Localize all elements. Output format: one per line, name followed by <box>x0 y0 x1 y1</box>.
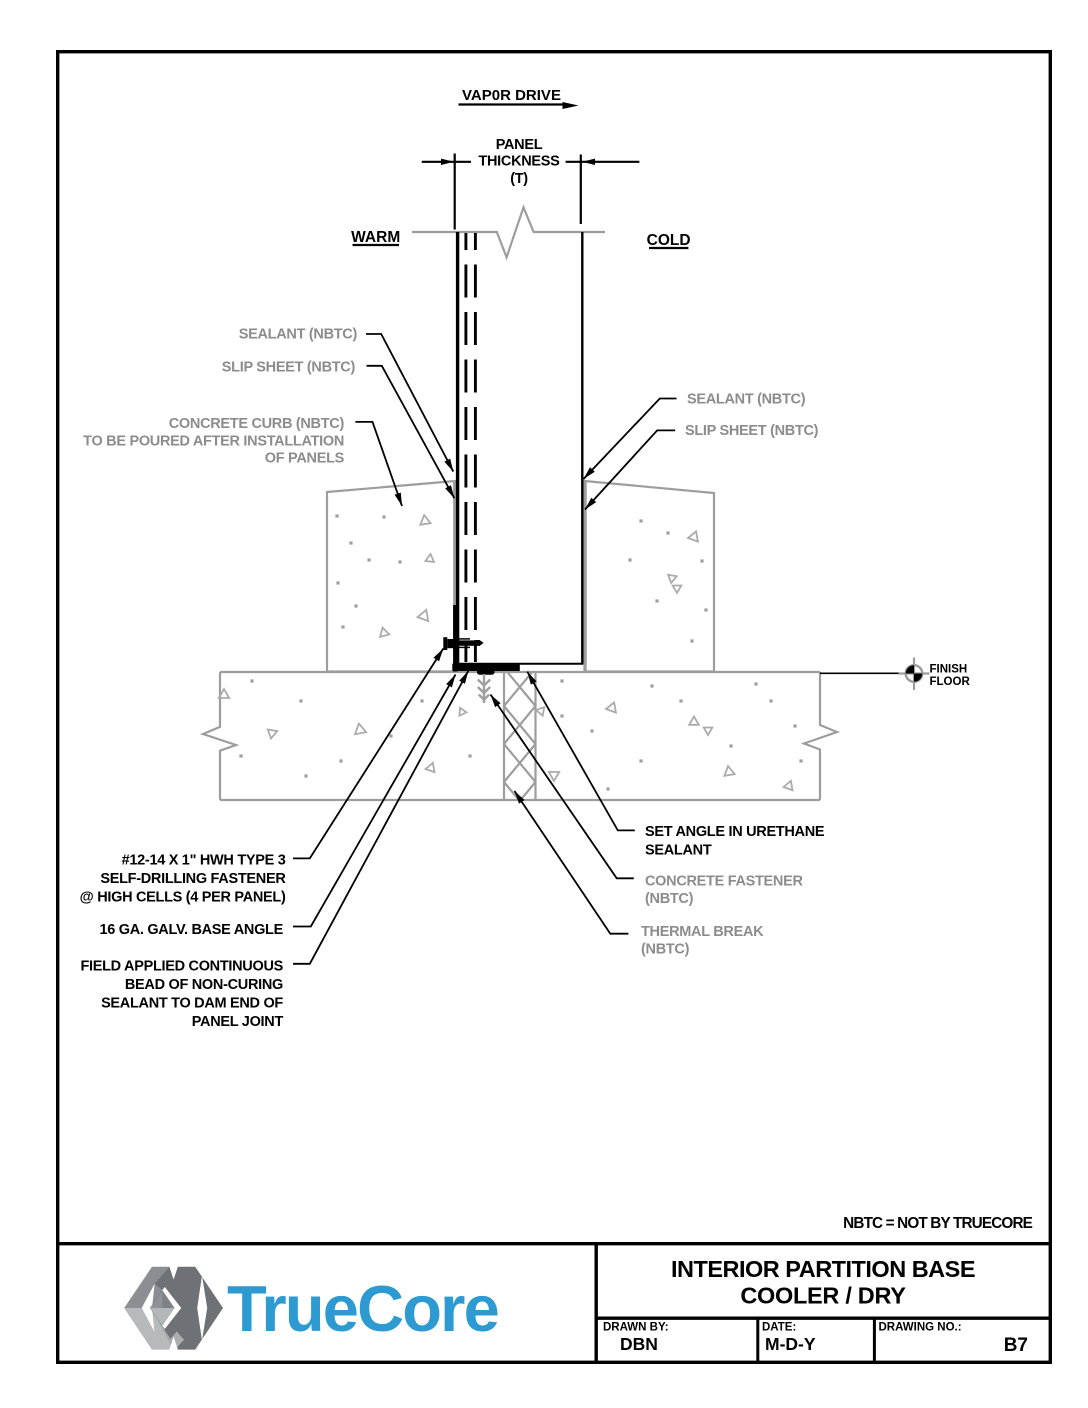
svg-text:(NBTC): (NBTC) <box>641 942 690 958</box>
svg-text:DATE:: DATE: <box>762 1322 796 1334</box>
svg-text:NBTC = NOT BY TRUECORE: NBTC = NOT BY TRUECORE <box>843 1215 1032 1232</box>
svg-text:FIELD APPLIED CONTINUOUS: FIELD APPLIED CONTINUOUS <box>80 959 283 975</box>
svg-text:SLIP SHEET (NBTC): SLIP SHEET (NBTC) <box>685 423 819 439</box>
svg-text:VAP0R DRIVE: VAP0R DRIVE <box>462 87 561 104</box>
svg-text:OF PANELS: OF PANELS <box>265 451 345 467</box>
svg-text:PANEL JOINT: PANEL JOINT <box>192 1014 284 1030</box>
svg-text:SEALANT: SEALANT <box>645 843 712 859</box>
svg-text:SELF-DRILLING FASTENER: SELF-DRILLING FASTENER <box>100 871 286 887</box>
svg-text:DBN: DBN <box>620 1334 658 1354</box>
svg-text:BEAD OF NON-CURING: BEAD OF NON-CURING <box>125 977 283 993</box>
svg-text:CONCRETE FASTENER: CONCRETE FASTENER <box>645 874 803 890</box>
svg-text:SEALANT (NBTC): SEALANT (NBTC) <box>239 327 358 343</box>
svg-text:COOLER / DRY: COOLER / DRY <box>740 1283 906 1309</box>
svg-text:TO BE POURED AFTER INSTALLATIO: TO BE POURED AFTER INSTALLATION <box>83 434 344 450</box>
svg-text:THICKNESS: THICKNESS <box>478 154 560 170</box>
svg-text:M-D-Y: M-D-Y <box>765 1334 816 1354</box>
svg-text:FINISH: FINISH <box>930 664 968 676</box>
svg-text:(T): (T) <box>510 171 528 187</box>
svg-text:INTERIOR PARTITION BASE: INTERIOR PARTITION BASE <box>671 1256 975 1282</box>
svg-text:FLOOR: FLOOR <box>930 676 971 688</box>
svg-text:SET ANGLE IN URETHANE: SET ANGLE IN URETHANE <box>645 824 825 840</box>
svg-text:16 GA. GALV. BASE ANGLE: 16 GA. GALV. BASE ANGLE <box>99 922 283 938</box>
svg-text:B7: B7 <box>1004 1335 1028 1356</box>
svg-text:DRAWING NO.:: DRAWING NO.: <box>879 1322 962 1334</box>
svg-text:THERMAL BREAK: THERMAL BREAK <box>641 924 764 940</box>
svg-text:WARM: WARM <box>351 229 400 246</box>
svg-text:CONCRETE CURB (NBTC): CONCRETE CURB (NBTC) <box>169 416 345 432</box>
svg-text:SEALANT (NBTC): SEALANT (NBTC) <box>687 392 806 408</box>
svg-text:COLD: COLD <box>647 232 691 249</box>
svg-text:SEALANT TO DAM END OF: SEALANT TO DAM END OF <box>101 996 283 1012</box>
svg-text:DRAWN BY:: DRAWN BY: <box>603 1322 669 1334</box>
svg-text:SLIP SHEET (NBTC): SLIP SHEET (NBTC) <box>222 360 356 376</box>
svg-text:#12-14 X 1" HWH TYPE 3: #12-14 X 1" HWH TYPE 3 <box>122 853 286 869</box>
svg-text:PANEL: PANEL <box>496 137 543 153</box>
svg-text:TrueCore: TrueCore <box>227 1272 498 1345</box>
svg-text:@ HIGH CELLS (4 PER PANEL): @ HIGH CELLS (4 PER PANEL) <box>80 890 286 906</box>
svg-text:(NBTC): (NBTC) <box>645 891 694 907</box>
